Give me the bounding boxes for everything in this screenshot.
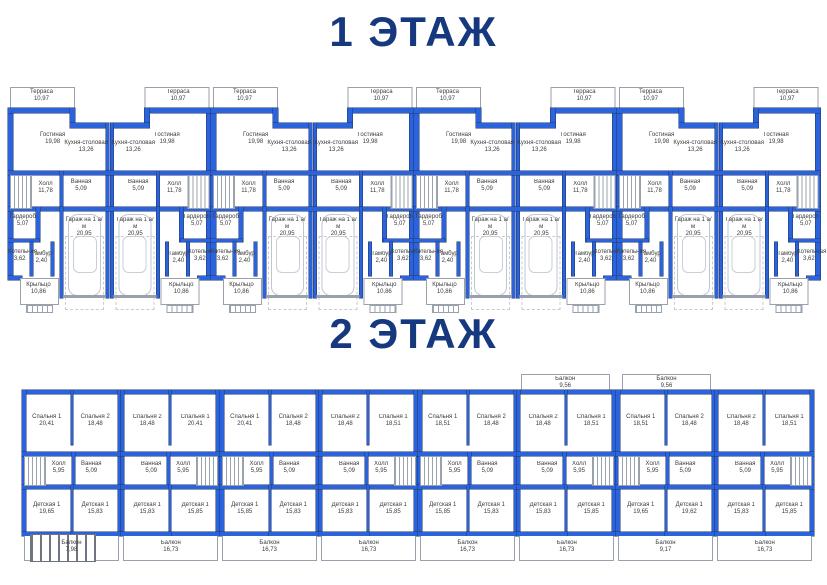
balcony-bottom-label: Балкон16,73 [727,540,801,554]
room-label-boiler: Котельная3,62 [8,249,31,263]
room-label-bath: Ванная5,09 [670,461,700,475]
balcony-bottom-label: Балкон16,73 [232,540,306,554]
room-label-kids1: Детская 115,85 [173,502,217,516]
room-label-hall: Холл11,78 [159,181,187,195]
room-label-hall: Холл11,78 [362,181,390,195]
room-label-wardrobe: Гардероб5,07 [9,214,36,228]
stairs-icon [593,175,615,209]
wall-hall-bath [666,452,669,488]
wall-hall-bath [167,452,170,488]
townhouse-unit-floor1: Терраса10,97 Гостиная19,98 Кухня-столова… [211,86,313,312]
balcony-bottom-outline: Балкон16,73 [222,536,317,561]
room-label-porch: Крыльцо10,86 [773,282,805,296]
room-label-tambour: Тамбур2,40 [370,251,390,265]
room-label-hall: Холл5,95 [46,461,72,475]
room-label-boiler: Котельная3,62 [188,249,211,263]
room-label-bedroom2: Спальня 218,48 [323,414,367,428]
wall-top-kitchen [273,123,313,128]
wall-top-kitchen [70,123,110,128]
room-label-bath: Ванная5,09 [136,461,166,475]
stairs-icon [796,175,818,209]
garage-door-line [63,295,106,298]
room-label-tambour: Тамбур2,40 [437,251,457,265]
wall-top-living [8,108,75,113]
wall-hall-bath [263,171,267,211]
balcony-bottom-outline: Балкон9,17 [618,536,713,561]
garage-door-line [469,295,512,298]
room-label-hall: Холл11,78 [768,181,796,195]
room-label-kitchen: Кухня-столовая13,26 [314,140,359,154]
room-label-wardrobe: Гардероб5,07 [589,214,616,228]
wall-garage-left [359,207,363,298]
room-label-bedroom1: Спальня 120,41 [173,414,217,428]
room-label-kids1: Детская 115,85 [223,502,267,516]
room-label-kitchen: Кухня-столовая13,26 [64,140,109,154]
room-label-bedroom2: Спальня 218,48 [271,414,315,428]
wall-garage-left [263,207,267,298]
room-label-terrace: Терраса10,97 [353,89,408,103]
wall-wardrobe-right [36,207,40,242]
room-label-boiler: Котельная3,62 [414,249,437,263]
room-label-garage: Гараж на 1 а/м20,95 [674,217,713,239]
balcony-bottom-label: Балкон16,73 [529,540,603,554]
room-label-bedroom1: Спальня 118,51 [421,414,465,428]
wall-wardrobe-bottom [383,239,414,242]
room-label-kids1: Детская 115,85 [569,502,613,516]
townhouse-unit-floor1: Терраса10,97 Гостиная19,98 Кухня-столова… [110,86,212,312]
room-label-tambour: Тамбур2,40 [640,251,660,265]
balcony-bottom-outline: Балкон16,73 [519,536,614,561]
room-label-garage: Гараж на 1 а/м20,95 [319,217,358,239]
wall-party-right [121,390,124,536]
room-label-terrace: Терраса10,97 [759,89,814,103]
floor1-title: 1 ЭТАЖ [0,8,827,56]
wall-top-living [347,108,414,113]
townhouse-unit-floor1: Терраса10,97 Гостиная19,98 Кухня-столова… [414,86,516,312]
room-label-bath: Ванная5,09 [268,179,300,193]
garage-door-line [672,295,715,298]
stairs-icon [196,456,218,486]
room-label-bath: Ванная5,09 [730,461,760,475]
balcony-bottom-label: Балкон16,73 [133,540,207,554]
room-label-bedroom2: Спальня 218,48 [521,414,565,428]
room-label-terrace: Терраса10,97 [217,89,272,103]
wall-mid-upper [121,452,220,456]
townhouse-unit-floor2: Балкон16,73 Спальня 118,51 Спальня 218,4… [418,372,517,583]
balcony-bottom-label: Балкон7,98 [34,540,108,554]
wall-hall-bath [365,452,368,488]
room-label-hall: Холл5,95 [567,461,593,475]
room-label-porch: Крыльцо10,86 [22,282,54,296]
room-label-hall: Холл11,78 [565,181,593,195]
wall-wardrobe-right [645,207,649,242]
wall-hall-bath [72,452,75,488]
balcony-top-outline: Балкон9,56 [622,374,711,391]
wall-mid-upper [319,452,418,456]
garage-door-line [519,295,562,298]
wall-wardrobe-right [788,207,792,242]
room-label-kids1: Детская 119,65 [619,502,663,516]
room-label-kids1: Детская 115,85 [371,502,415,516]
room-label-hall: Холл11,78 [437,181,465,195]
townhouse-unit-floor2: Балкон9,56 Балкон9,17 Спальня 118,51 Спа… [616,372,715,583]
room-label-wardrobe: Гардероб5,07 [212,214,239,228]
wall-garage-left [60,207,64,298]
room-label-bedroom1: Спальня 120,41 [25,414,69,428]
room-label-kids2: Детская 115,83 [271,502,315,516]
wall-hall-bath [563,452,566,488]
room-label-bath: Ванная5,09 [731,179,763,193]
room-label-bedroom2: Спальня 218,48 [667,414,711,428]
room-label-terrace: Терраса10,97 [14,89,69,103]
room-label-bedroom2: Спальня 218,48 [719,414,763,428]
wall-hall-bath [270,452,273,488]
wall-top-kitchen [313,123,353,128]
room-label-bedroom2: Спальня 218,48 [469,414,513,428]
room-label-boiler: Котельная3,62 [594,249,617,263]
room-label-hall: Холл5,95 [369,461,395,475]
wall-top-living [211,108,278,113]
room-label-kids2: Детская 115,83 [521,502,565,516]
room-label-kids1: Детская 115,85 [767,502,811,516]
room-label-terrace: Терраса10,97 [556,89,611,103]
garage-door-line [113,295,156,298]
room-label-hall: Холл5,95 [765,461,791,475]
wall-wardrobe-right [585,207,589,242]
wall-top-living [414,108,481,113]
balcony-bottom-outline: Балкон16,73 [420,536,515,561]
room-label-porch: Крыльцо10,86 [225,282,257,296]
room-label-tambour: Тамбур2,40 [573,251,593,265]
balcony-top-label: Балкон9,56 [531,376,601,390]
room-label-bedroom1: Спальня 118,51 [569,414,613,428]
balcony-bottom-outline: Балкон16,73 [717,536,812,561]
room-label-tambour: Тамбур2,40 [234,251,254,265]
room-label-terrace: Терраса10,97 [420,89,475,103]
room-label-porch: Крыльцо10,86 [570,282,602,296]
room-label-bath: Ванная5,09 [472,461,502,475]
room-label-kitchen: Кухня-столовая13,26 [673,140,718,154]
wall-hall-bath [60,171,64,211]
room-label-wardrobe: Гардероб5,07 [618,214,645,228]
wall-hall-bath [761,452,764,488]
room-label-boiler: Котельная3,62 [391,249,414,263]
room-label-garage: Гараж на 1 а/м20,95 [522,217,561,239]
room-label-kids2: Детская 115,83 [125,502,169,516]
townhouse-unit-floor2: Балкон7,98 Спальня 120,41 Спальня 218,48… [22,372,121,583]
room-label-garage: Гараж на 1 а/м20,95 [471,217,510,239]
wall-hall-bath [466,171,470,211]
room-label-bath: Ванная5,09 [528,179,560,193]
townhouse-unit-floor2: Балкон16,73 Спальня 118,51 Спальня 218,4… [319,372,418,583]
room-label-tambour: Тамбур2,40 [31,251,51,265]
stairs-icon [416,175,438,209]
wall-wardrobe-right [442,207,446,242]
room-label-garage: Гараж на 1 а/м20,95 [268,217,307,239]
room-label-bedroom1: Спальня 118,51 [767,414,811,428]
room-label-kids2: Детская 115,83 [719,502,763,516]
stairs-icon [187,175,209,209]
room-label-bath: Ванная5,09 [274,461,304,475]
stairs-icon [618,456,640,486]
room-label-terrace: Терраса10,97 [623,89,678,103]
room-label-porch: Крыльцо10,86 [631,282,663,296]
balcony-top-label: Балкон9,56 [632,376,702,390]
balcony-bottom-outline: Балкон16,73 [321,536,416,561]
room-label-boiler: Котельная3,62 [797,249,820,263]
wall-party-right [319,390,322,536]
wall-top-kitchen [476,123,516,128]
room-label-garage: Гараж на 1 а/м20,95 [65,217,104,239]
wall-garage-left [156,207,160,298]
room-label-bath: Ванная5,09 [532,461,562,475]
wall-wardrobe-bottom [789,239,820,242]
room-label-garage: Гараж на 1 а/м20,95 [116,217,155,239]
wall-wardrobe-bottom [180,239,211,242]
stairs-icon [24,456,46,486]
room-label-boiler: Котельная3,62 [617,249,640,263]
wall-party-right [517,390,520,536]
townhouse-unit-floor2: Балкон16,73 Спальня 120,41 Спальня 218,4… [121,372,220,583]
wall-top-living [144,108,211,113]
balcony-bottom-label: Балкон16,73 [331,540,405,554]
room-label-hall: Холл5,95 [244,461,270,475]
townhouse-unit-floor1: Терраса10,97 Гостиная19,98 Кухня-столова… [516,86,618,312]
wall-top-kitchen [110,123,150,128]
room-label-hall: Холл11,78 [640,181,668,195]
room-label-bedroom2: Спальня 218,48 [125,414,169,428]
wall-top-living [550,108,617,113]
stairs-icon [420,456,442,486]
garage-door-line [266,295,309,298]
room-label-kids2: Детская 115,83 [73,502,117,516]
room-label-bath: Ванная5,09 [122,179,154,193]
room-label-kids2: Детская 119,62 [667,502,711,516]
room-label-wardrobe: Гардероб5,07 [792,214,819,228]
wall-wardrobe-right [239,207,243,242]
stairs-icon [394,456,416,486]
room-label-boiler: Котельная3,62 [211,249,234,263]
room-label-bedroom2: Спальня 218,48 [73,414,117,428]
wall-hall-bath [562,171,566,211]
room-label-kids2: Детская 115,83 [323,502,367,516]
room-label-kids1: Детская 115,85 [421,502,465,516]
wall-hall-bath [156,171,160,211]
room-label-bath: Ванная5,09 [674,179,706,193]
stairs-icon [213,175,235,209]
wall-wardrobe-bottom [414,239,445,242]
wall-garage-left [765,207,769,298]
room-label-kitchen: Кухня-столовая13,26 [517,140,562,154]
wall-garage-left [562,207,566,298]
townhouse-unit-floor2: Балкон16,73 Спальня 118,51 Спальня 218,4… [715,372,814,583]
room-label-hall: Холл11,78 [31,181,59,195]
room-label-kitchen: Кухня-столовая13,26 [720,140,765,154]
wall-wardrobe-right [382,207,386,242]
room-label-bedroom1: Спальня 120,41 [223,414,267,428]
floor-plan-page: 1 ЭТАЖ Терраса10,97 Гостиная19,98 [0,0,827,585]
room-label-wardrobe: Гардероб5,07 [386,214,413,228]
stairs-icon [222,456,244,486]
room-label-tambour: Тамбур2,40 [776,251,796,265]
floor2-title: 2 ЭТАЖ [0,310,827,358]
wall-top-living [617,108,684,113]
wall-wardrobe-bottom [617,239,648,242]
room-label-hall: Холл5,95 [171,461,197,475]
wall-hall-bath [669,171,673,211]
wall-hall-bath [468,452,471,488]
room-label-wardrobe: Гардероб5,07 [183,214,210,228]
stairs-icon [592,456,614,486]
room-label-kids2: Детская 115,83 [469,502,513,516]
wall-garage-left [669,207,673,298]
wall-hall-bath [359,171,363,211]
garage-door-line [316,295,359,298]
wall-wardrobe-bottom [211,239,242,242]
floor1-plan: Терраса10,97 Гостиная19,98 Кухня-столова… [8,86,820,312]
stairs-icon [390,175,412,209]
townhouse-unit-floor1: Терраса10,97 Гостиная19,98 Кухня-столова… [313,86,415,312]
room-label-bath: Ванная5,09 [334,461,364,475]
room-label-kitchen: Кухня-столовая13,26 [267,140,312,154]
wall-top-kitchen [719,123,759,128]
room-label-bedroom1: Спальня 118,51 [371,414,415,428]
balcony-bottom-label: Балкон16,73 [430,540,504,554]
room-label-porch: Крыльцо10,86 [428,282,460,296]
wall-hall-bath [765,171,769,211]
wall-mid-upper [517,452,616,456]
wall-party-right [715,390,718,536]
room-label-tambour: Тамбур2,40 [167,251,187,265]
stairs-icon [790,456,812,486]
townhouse-unit-floor2: Балкон16,73 Спальня 120,41 Спальня 218,4… [220,372,319,583]
garage-door-line [722,295,765,298]
balcony-bottom-label: Балкон9,17 [628,540,702,554]
wall-top-kitchen [516,123,556,128]
townhouse-unit-floor1: Терраса10,97 Гостиная19,98 Кухня-столова… [719,86,821,312]
room-label-kitchen: Кухня-столовая13,26 [111,140,156,154]
townhouse-unit-floor2: Балкон9,56 Балкон16,73 Спальня 118,51 Сп… [517,372,616,583]
wall-wardrobe-bottom [8,239,39,242]
room-label-hall: Холл5,95 [640,461,666,475]
room-label-porch: Крыльцо10,86 [164,282,196,296]
stairs-icon [619,175,641,209]
room-label-bath: Ванная5,09 [325,179,357,193]
stairs-icon [10,175,32,209]
room-label-bath: Ванная5,09 [471,179,503,193]
balcony-bottom-outline: Балкон16,73 [123,536,218,561]
room-label-hall: Холл11,78 [234,181,262,195]
room-label-kitchen: Кухня-столовая13,26 [470,140,515,154]
room-label-bath: Ванная5,09 [76,461,106,475]
room-label-hall: Холл5,95 [442,461,468,475]
wall-top-kitchen [679,123,719,128]
townhouse-unit-floor1: Терраса10,97 Гостиная19,98 Кухня-столова… [8,86,110,312]
townhouse-unit-floor1: Терраса10,97 Гостиная19,98 Кухня-столова… [617,86,719,312]
balcony-top-outline: Балкон9,56 [521,374,610,391]
room-label-wardrobe: Гардероб5,07 [415,214,442,228]
room-label-porch: Крыльцо10,86 [367,282,399,296]
wall-wardrobe-right [179,207,183,242]
floor2-plan: Балкон7,98 Спальня 120,41 Спальня 218,48… [22,372,814,583]
wall-mid-upper [715,452,814,456]
room-label-bedroom1: Спальня 118,51 [619,414,663,428]
room-label-terrace: Терраса10,97 [150,89,205,103]
wall-garage-left [466,207,470,298]
room-label-kids1: Детская 119,65 [25,502,69,516]
room-label-bath: Ванная5,09 [65,179,97,193]
room-label-garage: Гараж на 1 а/м20,95 [725,217,764,239]
wall-top-living [753,108,820,113]
wall-wardrobe-bottom [586,239,617,242]
